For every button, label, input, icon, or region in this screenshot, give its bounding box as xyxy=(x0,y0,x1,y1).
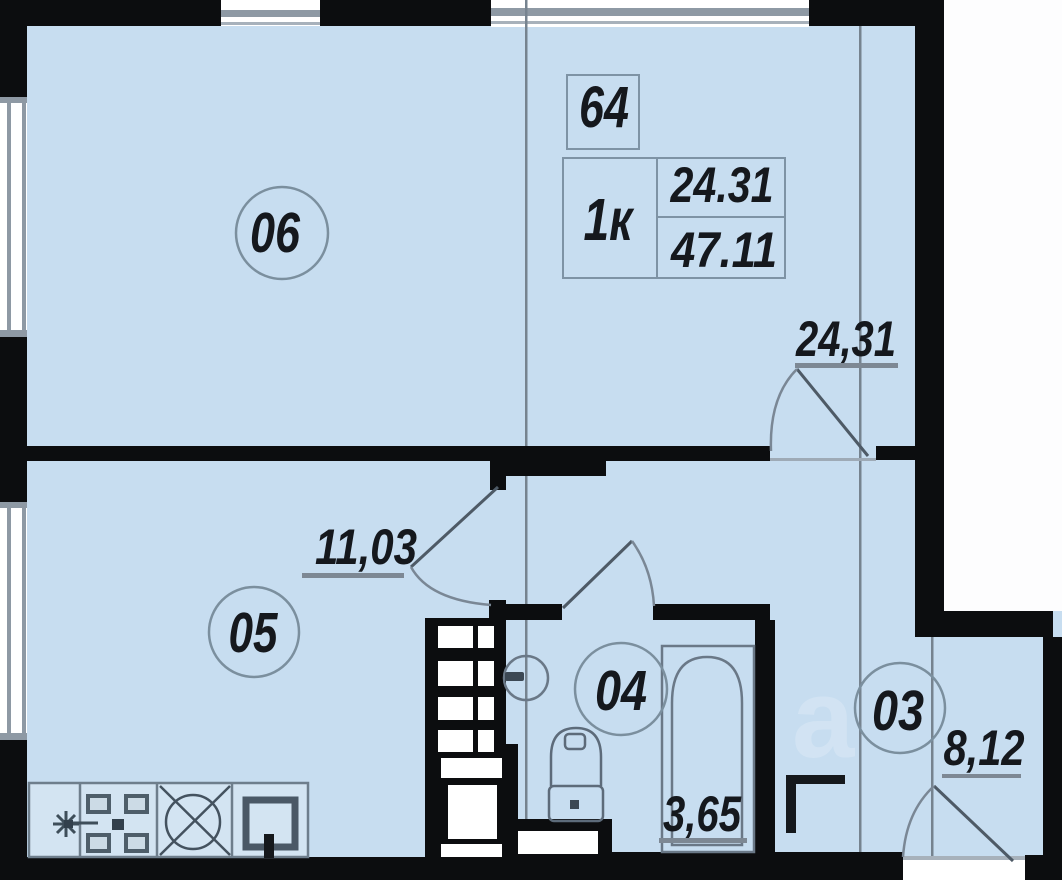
svg-text:1к: 1к xyxy=(584,187,635,253)
svg-text:11,03: 11,03 xyxy=(315,519,417,575)
svg-text:04: 04 xyxy=(595,659,647,723)
svg-text:24,31: 24,31 xyxy=(795,311,896,367)
svg-text:05: 05 xyxy=(229,601,279,665)
svg-text:8,12: 8,12 xyxy=(944,720,1025,776)
svg-text:24.31: 24.31 xyxy=(670,157,774,213)
svg-text:03: 03 xyxy=(872,679,924,743)
svg-text:47.11: 47.11 xyxy=(670,222,777,278)
svg-text:3,65: 3,65 xyxy=(663,786,742,842)
svg-text:а: а xyxy=(792,656,855,781)
svg-text:64: 64 xyxy=(579,75,629,140)
svg-text:06: 06 xyxy=(250,201,300,265)
